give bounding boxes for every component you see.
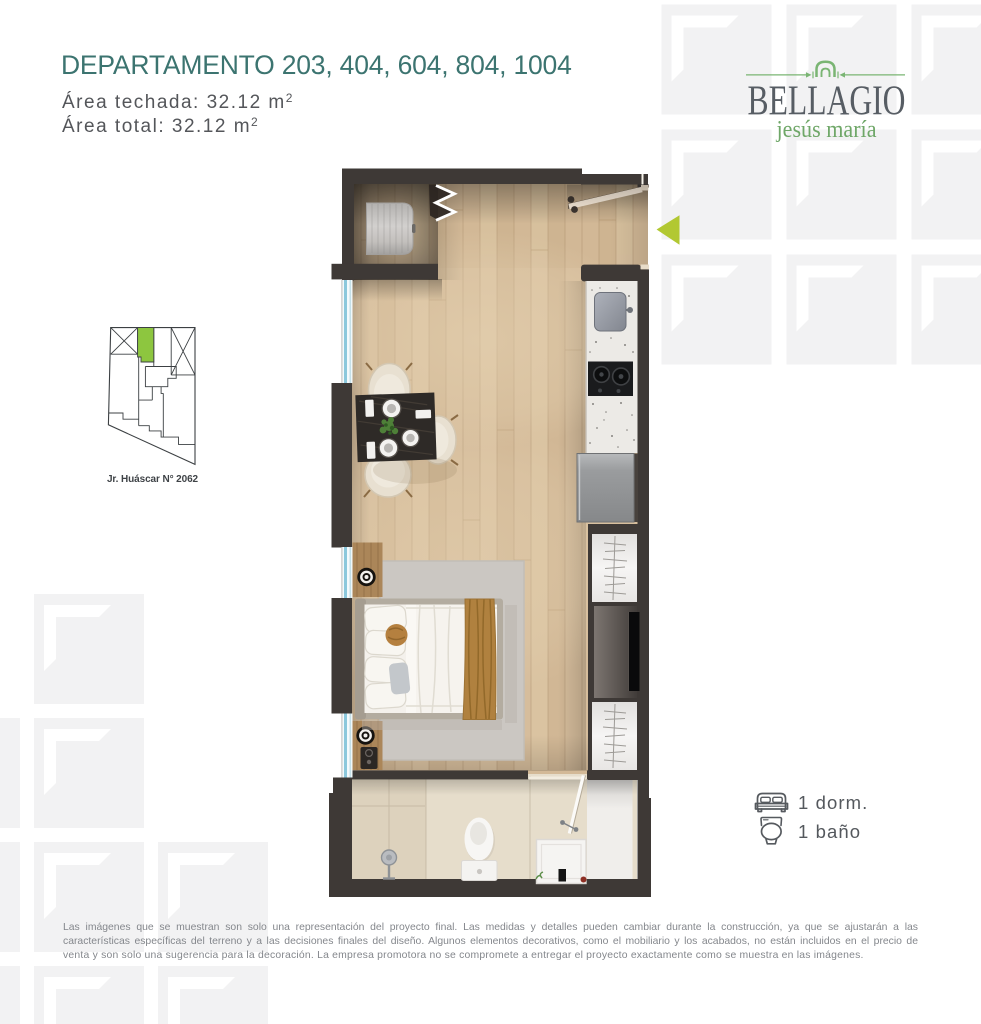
svg-text:jesús maría: jesús maría: [776, 117, 877, 143]
